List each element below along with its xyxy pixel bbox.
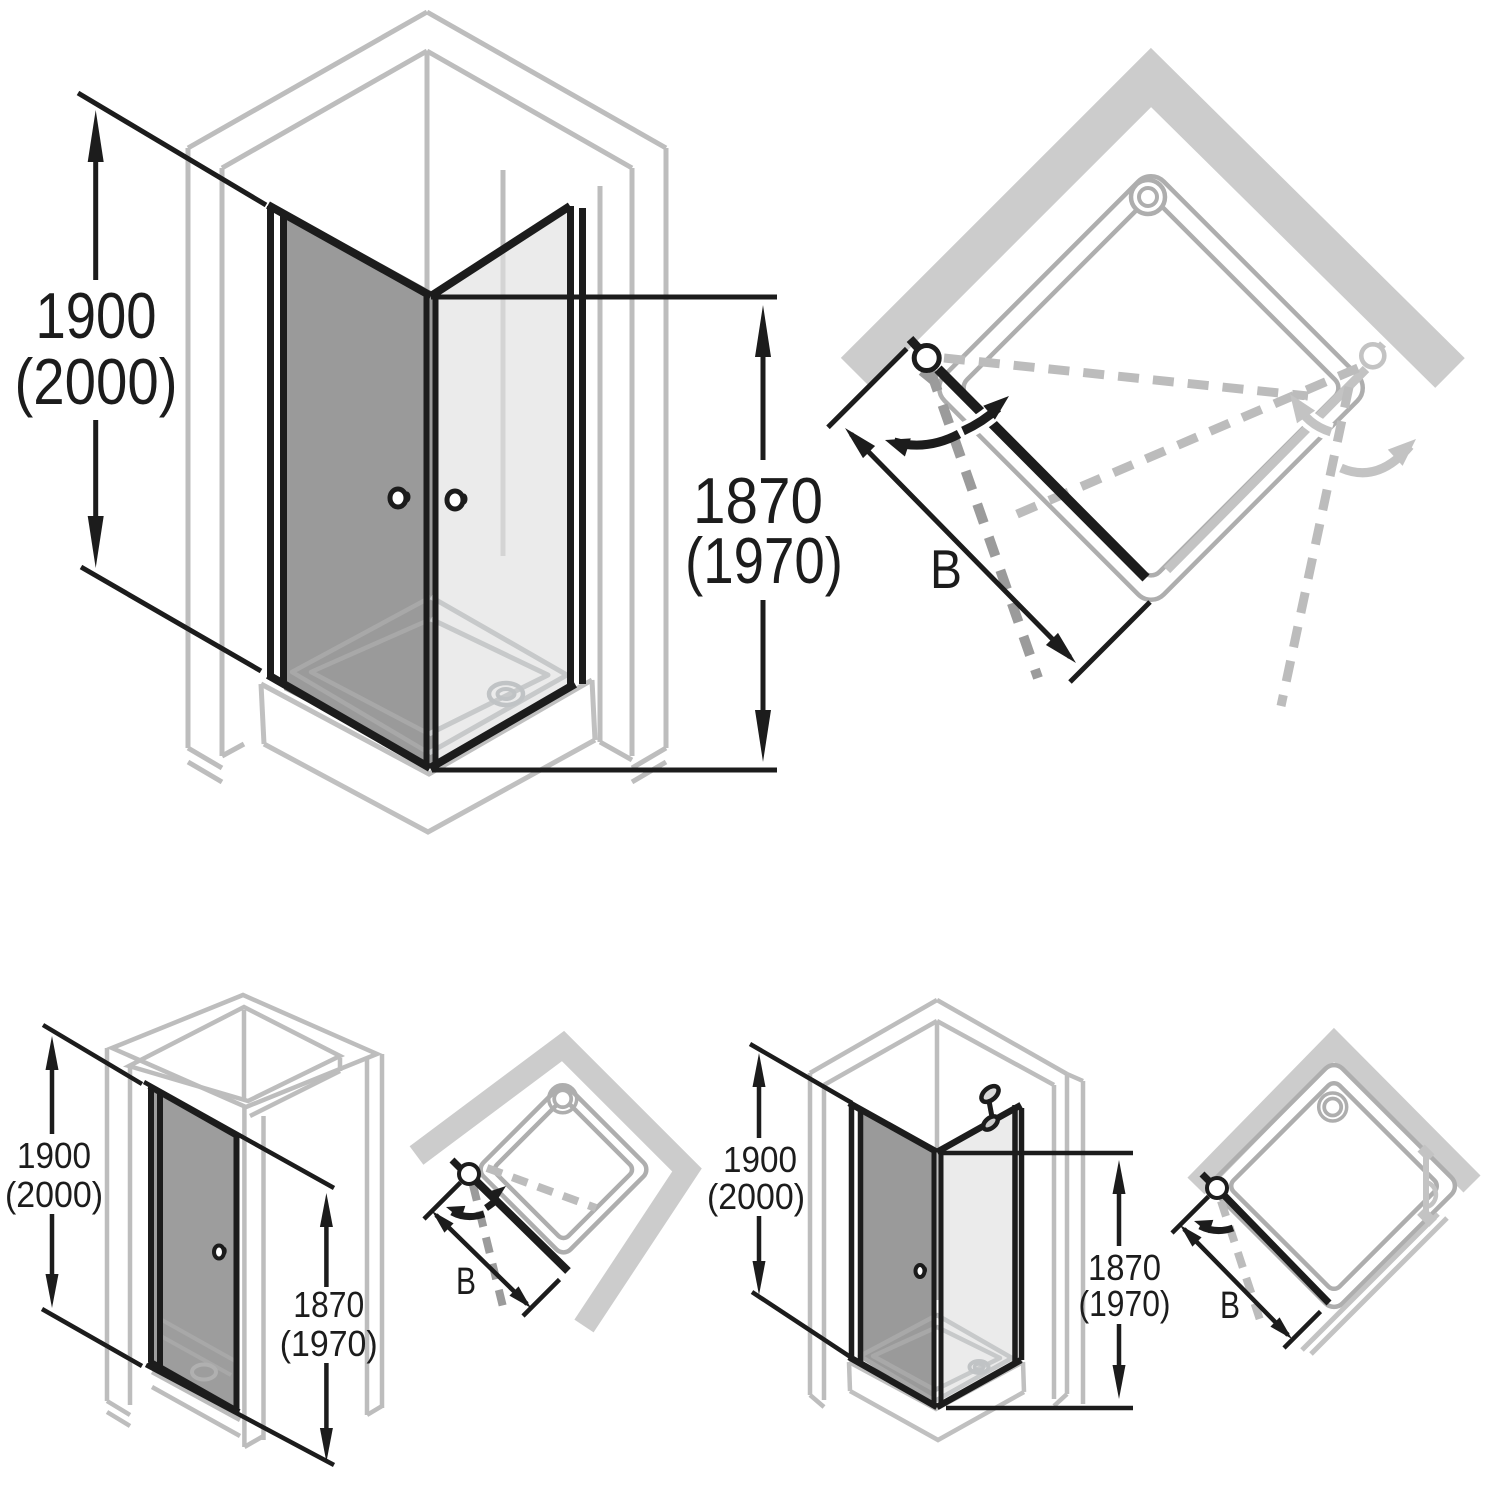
svg-text:(1970): (1970) [280, 1323, 378, 1364]
svg-text:1870: 1870 [1088, 1247, 1161, 1288]
svg-text:(1970): (1970) [685, 524, 843, 597]
svg-text:1870: 1870 [293, 1284, 364, 1325]
svg-text:(1970): (1970) [1079, 1283, 1171, 1324]
svg-text:(2000): (2000) [5, 1174, 103, 1215]
svg-text:B: B [456, 1261, 476, 1303]
svg-text:(2000): (2000) [15, 345, 178, 418]
svg-text:B: B [930, 538, 962, 600]
svg-text:1900: 1900 [723, 1139, 797, 1180]
svg-text:B: B [1220, 1285, 1240, 1327]
svg-text:(2000): (2000) [707, 1176, 805, 1217]
svg-text:1900: 1900 [36, 279, 157, 352]
svg-text:1900: 1900 [17, 1135, 91, 1176]
